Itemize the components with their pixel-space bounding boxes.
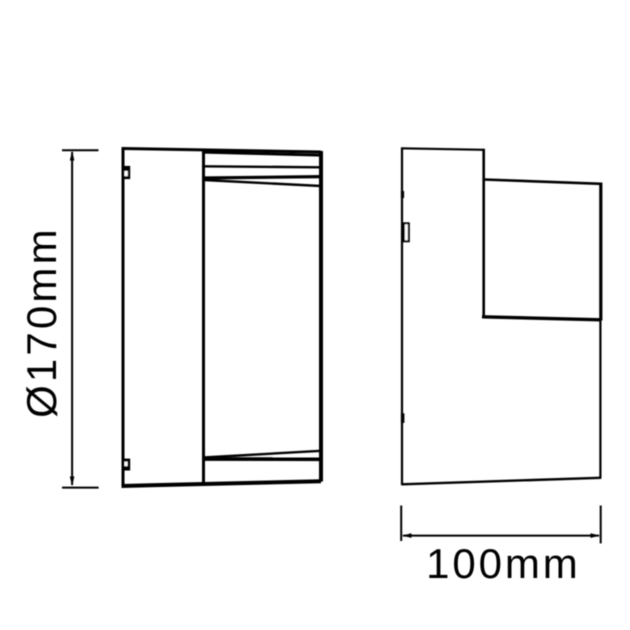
svg-text:Ø170mm: Ø170mm (18, 226, 65, 418)
svg-text:100mm: 100mm (426, 540, 581, 587)
